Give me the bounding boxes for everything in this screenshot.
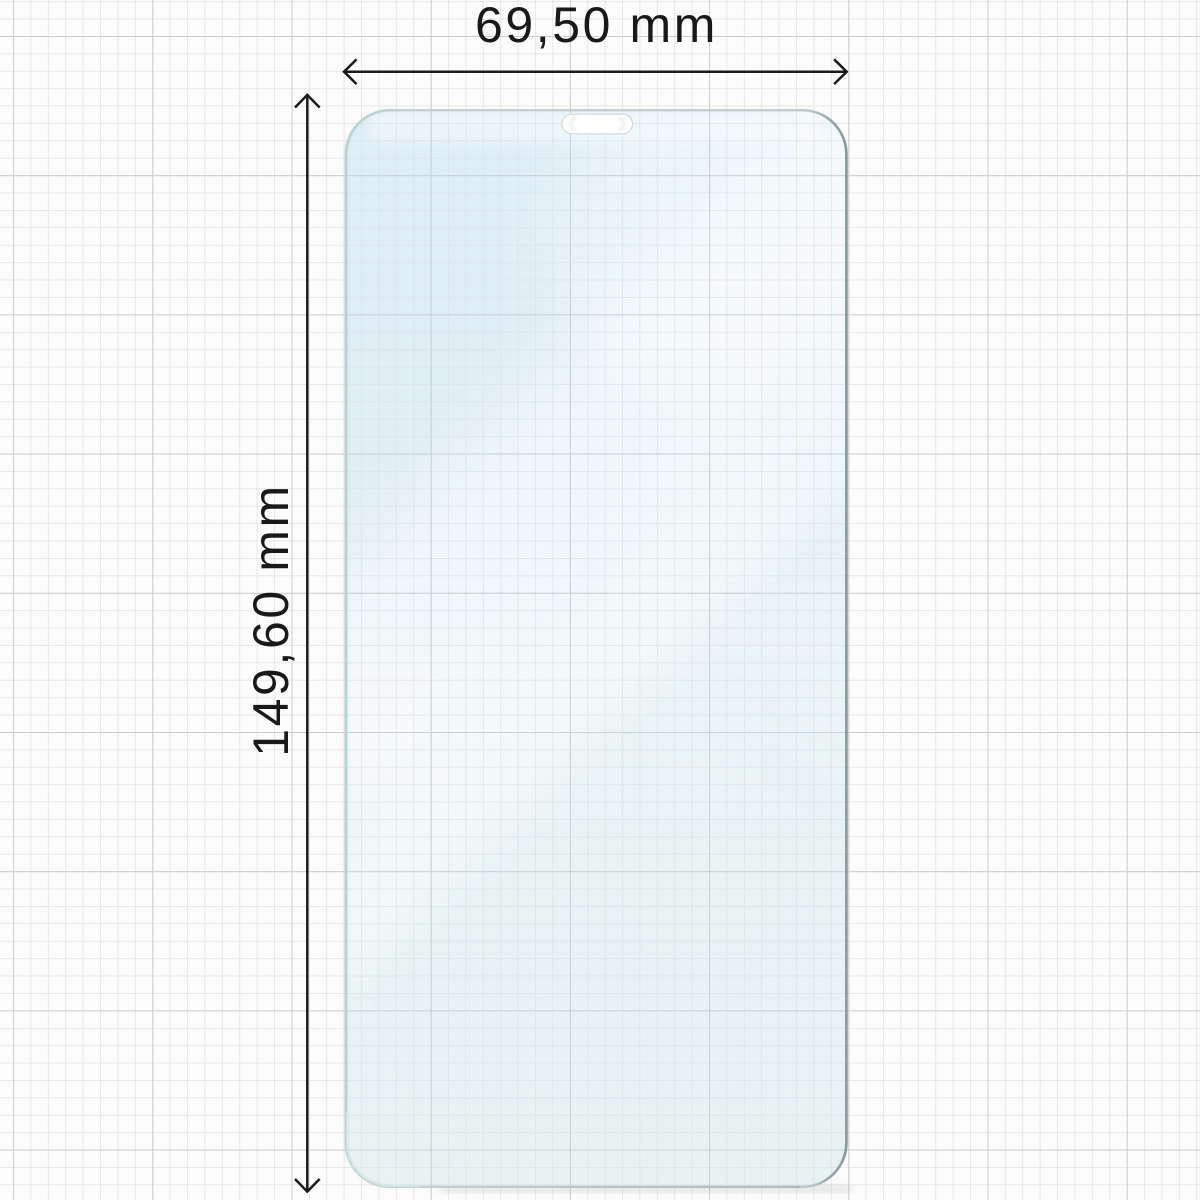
svg-text:149,60 mm: 149,60 mm [243,483,299,757]
svg-text:69,50 mm: 69,50 mm [475,0,718,53]
